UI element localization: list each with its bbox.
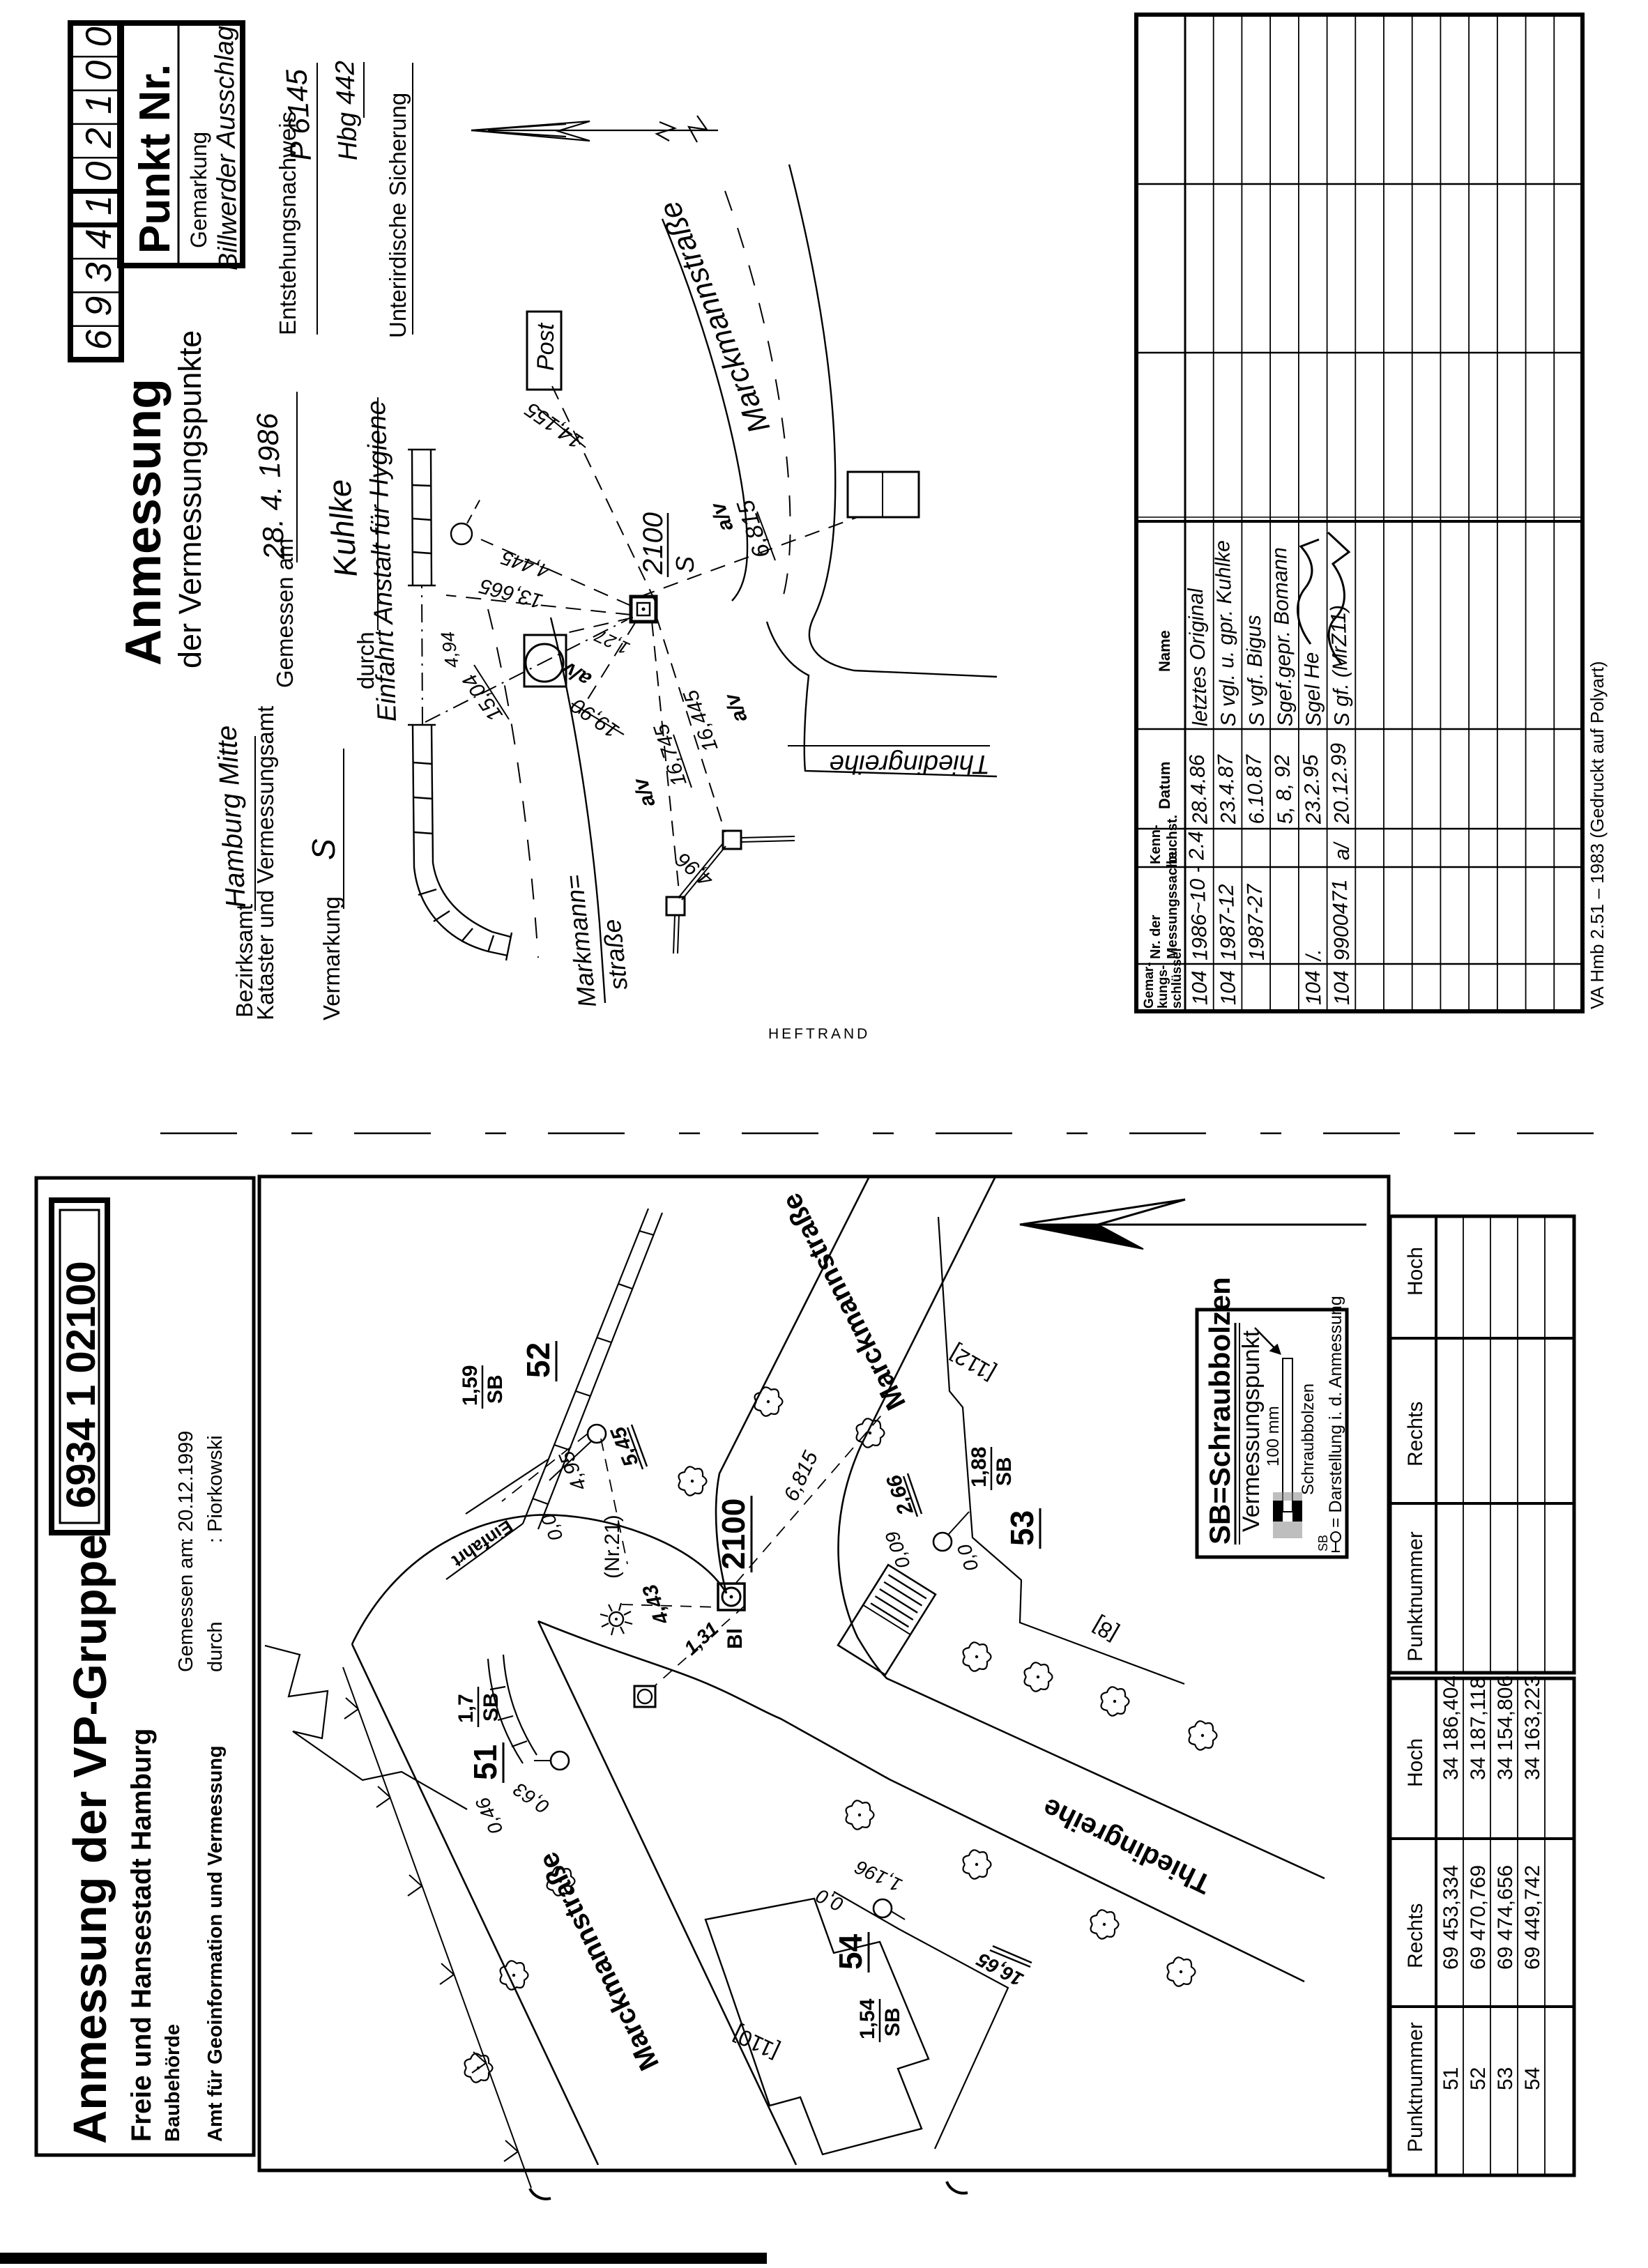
svg-text:Freie und Hansestadt Hamburg: Freie und Hansestadt Hamburg (126, 1729, 157, 2142)
svg-text:16,745: 16,745 (650, 721, 692, 789)
svg-text:9900471: 9900471 (1328, 879, 1354, 961)
svg-text:Rechts: Rechts (1404, 1903, 1427, 1968)
svg-text:69 470,769: 69 470,769 (1467, 1865, 1490, 1970)
svg-text:HEFTRAND: HEFTRAND (768, 1026, 870, 1042)
svg-text:5, 8, 92: 5, 8, 92 (1271, 753, 1297, 825)
svg-text:der Vermessungspunkte: der Vermessungspunkte (172, 330, 208, 668)
svg-text:Hoch: Hoch (1404, 1247, 1427, 1296)
svg-text:= Darstellung i. d. Anmessung: = Darstellung i. d. Anmessung (1326, 1296, 1345, 1528)
svg-text:Punktnummer: Punktnummer (1404, 2022, 1427, 2152)
svg-text:SB=Schraubbolzen: SB=Schraubbolzen (1203, 1277, 1236, 1545)
svg-text:6934 1 02100: 6934 1 02100 (59, 1261, 104, 1508)
svg-text:Sgel He: Sgel He (1300, 652, 1326, 727)
svg-text:54: 54 (1521, 2067, 1544, 2090)
svg-text:0,0: 0,0 (953, 1541, 983, 1574)
svg-text:straße: straße (597, 918, 633, 992)
svg-text:34 187,118: 34 187,118 (1467, 1677, 1490, 1780)
svg-text:Schraubbolzen: Schraubbolzen (1299, 1384, 1318, 1495)
svg-text:kungs-: kungs- (1156, 965, 1170, 1009)
svg-text:51: 51 (1440, 2067, 1463, 2090)
svg-text:23.2.95: 23.2.95 (1299, 753, 1325, 825)
svg-text:69 449,742: 69 449,742 (1521, 1865, 1544, 1970)
svg-text:SB: SB (993, 1457, 1016, 1486)
svg-text:20.12.99: 20.12.99 (1327, 742, 1354, 826)
svg-text:a/v: a/v (629, 774, 660, 810)
svg-text:Gemar-: Gemar- (1142, 962, 1157, 1009)
svg-text:104: 104 (1330, 970, 1355, 1006)
svg-text:0,63: 0,63 (510, 1779, 554, 1818)
svg-text:Hbg 442: Hbg 442 (330, 60, 363, 161)
svg-text:69 453,334: 69 453,334 (1440, 1865, 1463, 1970)
svg-text:Gemessen am: Gemessen am (272, 538, 298, 688)
svg-text:Vermarkung: Vermarkung (319, 896, 344, 1020)
svg-text:1,27: 1,27 (591, 625, 633, 659)
svg-text:1: 1 (79, 94, 119, 114)
svg-text:Datum: Datum (1156, 762, 1173, 809)
svg-text:1986~10 - 2.4: 1986~10 - 2.4 (1184, 831, 1212, 961)
svg-text:1987-27: 1987-27 (1243, 882, 1269, 960)
svg-text:28. 4. 1986: 28. 4. 1986 (250, 412, 291, 561)
svg-text:104: 104 (1302, 970, 1326, 1006)
svg-text:P 6145: P 6145 (280, 68, 317, 162)
svg-text:Bl: Bl (724, 1628, 747, 1649)
svg-text:4: 4 (79, 229, 119, 249)
svg-text:16,445: 16,445 (679, 687, 723, 755)
svg-text:Einfahrt: Einfahrt (448, 1516, 517, 1572)
svg-text:Kataster und Vermessungsamt: Kataster und Vermessungsamt (252, 706, 278, 1020)
svg-text:: 20.12.1999: : 20.12.1999 (175, 1431, 197, 1543)
svg-text:104: 104 (1188, 970, 1212, 1006)
svg-text:Messungssache: Messungssache (1165, 851, 1180, 959)
svg-text:Gemessen am: Gemessen am (175, 1540, 197, 1672)
svg-text:51: 51 (467, 1745, 503, 1780)
svg-text:4,95: 4,95 (555, 1448, 592, 1494)
svg-text:buchst.: buchst. (1165, 815, 1180, 864)
svg-text:(Nr.21): (Nr.21) (601, 1515, 624, 1579)
svg-text:Kuhlke: Kuhlke (321, 478, 364, 579)
svg-text:durch: durch (204, 1621, 227, 1672)
svg-text:2: 2 (79, 128, 119, 148)
svg-text:Baubehörde: Baubehörde (162, 2024, 184, 2142)
svg-text:a/v: a/v (720, 689, 752, 726)
svg-text:Sgef.gepr. Bomann: Sgef.gepr. Bomann (1268, 547, 1297, 727)
svg-text:Gemarkung: Gemarkung (186, 132, 211, 248)
svg-text:Vermessungspunkt: Vermessungspunkt (1238, 1330, 1265, 1532)
svg-text:Marckmannstraße: Marckmannstraße (653, 197, 777, 438)
svg-text:2100: 2100 (715, 1499, 751, 1570)
svg-text:6: 6 (79, 330, 119, 350)
svg-text:34 186,404: 34 186,404 (1440, 1676, 1463, 1780)
svg-text:SB: SB (480, 1692, 503, 1722)
svg-text:14,155: 14,155 (521, 397, 587, 453)
svg-text:Markmann=: Markmann= (559, 873, 602, 1009)
svg-text:a/: a/ (1330, 841, 1354, 861)
svg-text:5,45: 5,45 (606, 1423, 643, 1470)
svg-text:1,54: 1,54 (856, 1998, 879, 2039)
svg-text:Rechts: Rechts (1404, 1402, 1427, 1466)
svg-text:1: 1 (79, 195, 119, 215)
svg-text:100 mm: 100 mm (1264, 1406, 1283, 1466)
svg-text:52: 52 (1467, 2067, 1490, 2090)
svg-text:Post: Post (533, 322, 559, 371)
svg-text:: Piorkowski: : Piorkowski (204, 1435, 227, 1543)
svg-text:[8]: [8] (1088, 1613, 1122, 1647)
svg-text:6.10.87: 6.10.87 (1242, 753, 1269, 825)
svg-text:SB: SB (881, 2007, 904, 2037)
svg-text:Marckmannstraße: Marckmannstraße (776, 1188, 912, 1415)
svg-text:Billwerder Ausschlag: Billwerder Ausschlag (210, 26, 243, 271)
svg-text:1,59: 1,59 (459, 1365, 482, 1406)
svg-text:3: 3 (79, 262, 119, 282)
svg-text:34 154,806: 34 154,806 (1494, 1676, 1517, 1780)
svg-text:1,196: 1,196 (852, 1856, 906, 1897)
svg-text:53: 53 (1494, 2067, 1517, 2090)
svg-text:1,88: 1,88 (968, 1447, 991, 1487)
svg-text:Marckmannstraße: Marckmannstraße (533, 1847, 665, 2075)
svg-text:28.4.86: 28.4.86 (1185, 753, 1212, 825)
svg-text:a/v: a/v (706, 498, 738, 535)
svg-text:Punkt Nr.: Punkt Nr. (131, 64, 179, 254)
svg-text:Name: Name (1156, 630, 1173, 672)
svg-text:52: 52 (520, 1342, 556, 1378)
svg-text:Amt für Geoinformation und Ver: Amt für Geoinformation und Vermessung (204, 1745, 227, 2142)
svg-text:2100: 2100 (638, 512, 669, 575)
svg-text:[110]: [110] (728, 2022, 783, 2065)
svg-text:Unterirdische Sicherung: Unterirdische Sicherung (385, 93, 411, 338)
svg-text:69 474,656: 69 474,656 (1494, 1865, 1517, 1970)
svg-text:Thiedingreihe: Thiedingreihe (1038, 1792, 1216, 1900)
svg-text:1,31: 1,31 (680, 1618, 722, 1660)
svg-text:VA Hmb 2.51 – 1983 (Gedruckt a: VA Hmb 2.51 – 1983 (Gedruckt auf Polyart… (1587, 661, 1608, 1009)
svg-text:/.: /. (1302, 949, 1326, 963)
svg-text:Nr. der: Nr. der (1148, 914, 1163, 959)
svg-text:S: S (305, 838, 342, 860)
svg-text:4,94: 4,94 (437, 630, 463, 669)
svg-text:Kenn-: Kenn- (1148, 825, 1163, 864)
svg-text:23.4.87: 23.4.87 (1214, 753, 1240, 825)
svg-text:53: 53 (1004, 1510, 1040, 1546)
svg-text:0,0: 0,0 (813, 1885, 847, 1916)
svg-text:Hamburg Mitte: Hamburg Mitte (211, 725, 252, 909)
svg-text:S: S (671, 556, 699, 573)
svg-text:6,815: 6,815 (779, 1448, 823, 1505)
svg-text:54: 54 (832, 1933, 869, 1970)
svg-text:0: 0 (79, 26, 119, 47)
svg-text:0: 0 (79, 162, 119, 182)
svg-text:9: 9 (79, 296, 119, 316)
svg-text:1,7: 1,7 (455, 1694, 478, 1723)
svg-text:[112]: [112] (945, 1341, 1000, 1387)
svg-text:Thiedingreihe: Thiedingreihe (830, 749, 990, 779)
svg-text:34 163,223: 34 163,223 (1521, 1676, 1544, 1780)
svg-text:2,66: 2,66 (882, 1471, 917, 1518)
svg-text:S vgl. u. gpr. Kuhlke: S vgl. u. gpr. Kuhlke (1211, 540, 1240, 727)
svg-text:S vgf. Bigus: S vgf. Bigus (1242, 615, 1269, 727)
svg-text:letztes Original: letztes Original (1184, 587, 1212, 727)
svg-text:6,815: 6,815 (732, 497, 775, 562)
svg-text:Anmessung: Anmessung (116, 378, 171, 666)
svg-text:SB: SB (1316, 1535, 1330, 1551)
svg-text:104: 104 (1216, 970, 1241, 1006)
svg-text:Anmessung der VP-Gruppe: Anmessung der VP-Gruppe (64, 1534, 116, 2144)
svg-text:SB: SB (484, 1374, 507, 1404)
svg-text:1987-12: 1987-12 (1215, 883, 1241, 960)
svg-text:Punktnummer: Punktnummer (1404, 1531, 1427, 1662)
svg-text:0,09: 0,09 (881, 1528, 915, 1572)
svg-text:0,46: 0,46 (471, 1794, 507, 1838)
svg-text:0: 0 (79, 61, 119, 81)
svg-text:Hoch: Hoch (1404, 1738, 1427, 1787)
svg-text:4,445: 4,445 (498, 547, 552, 583)
